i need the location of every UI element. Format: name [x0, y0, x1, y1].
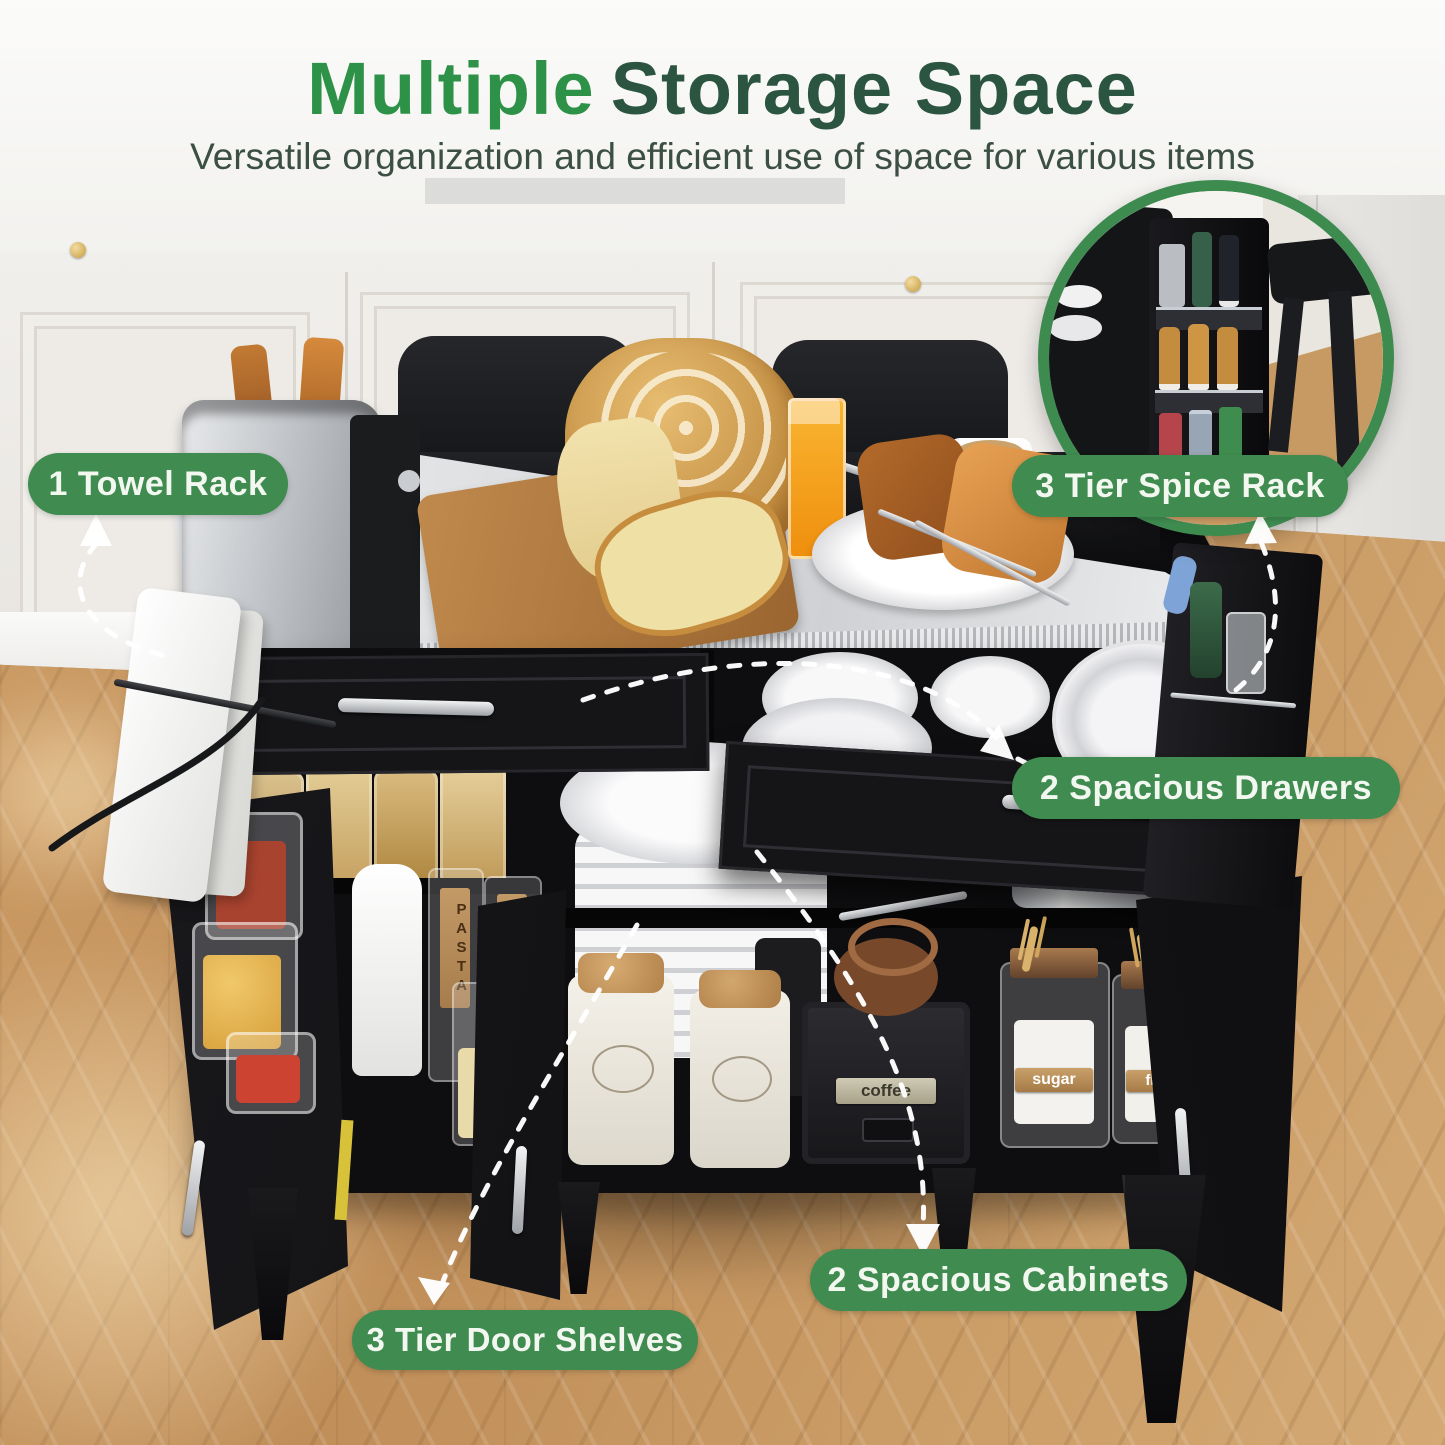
- milk-bottle: [352, 864, 422, 1076]
- door-shelf-container: [226, 1032, 316, 1114]
- inset-decanter: [1159, 244, 1185, 307]
- bowl: [930, 656, 1050, 738]
- sugar-jar: sugar: [1000, 962, 1110, 1148]
- coffee-grinder-base: coffee: [802, 1002, 970, 1164]
- inset-beer-bottle: [1188, 324, 1210, 390]
- canister-label: [592, 1045, 654, 1093]
- cork-lid: [578, 953, 664, 993]
- inset-plates: [1056, 285, 1103, 308]
- grinder-ring: [848, 918, 938, 976]
- callout-spacious-drawers: 2 Spacious Drawers: [1012, 757, 1400, 819]
- coffee-grinder-label: coffee: [836, 1078, 936, 1104]
- toaster-dial: [398, 470, 420, 492]
- inset-beer-bottle: [1159, 327, 1181, 390]
- canister-label: [712, 1056, 772, 1102]
- green-bottle: [1190, 582, 1222, 678]
- juice-glass-rim: [788, 398, 840, 424]
- cork-lid: [699, 970, 781, 1008]
- inset-dark-bottle: [1219, 235, 1239, 307]
- inset-beer-bottle: [1217, 327, 1239, 390]
- white-canister: [690, 990, 790, 1168]
- product-infographic: MultipleStorage Space Versatile organiza…: [0, 0, 1445, 1445]
- callout-spice-rack: 3 Tier Spice Rack: [1012, 455, 1348, 517]
- callout-towel-rack: 1 Towel Rack: [28, 453, 288, 515]
- container-contents-sauce: [236, 1055, 300, 1103]
- clear-bottle: [1226, 612, 1266, 694]
- spice-rack-rail: [1170, 692, 1296, 708]
- grinder-drawer: [862, 1118, 914, 1142]
- island-leg: [248, 1188, 298, 1340]
- inset-green-bottle: [1192, 232, 1211, 307]
- sugar-label: sugar: [1015, 1068, 1093, 1092]
- callout-spacious-cabinets: 2 Spacious Cabinets: [810, 1249, 1187, 1311]
- white-canister: [568, 975, 674, 1165]
- callout-door-shelves: 3 Tier Door Shelves: [352, 1310, 698, 1370]
